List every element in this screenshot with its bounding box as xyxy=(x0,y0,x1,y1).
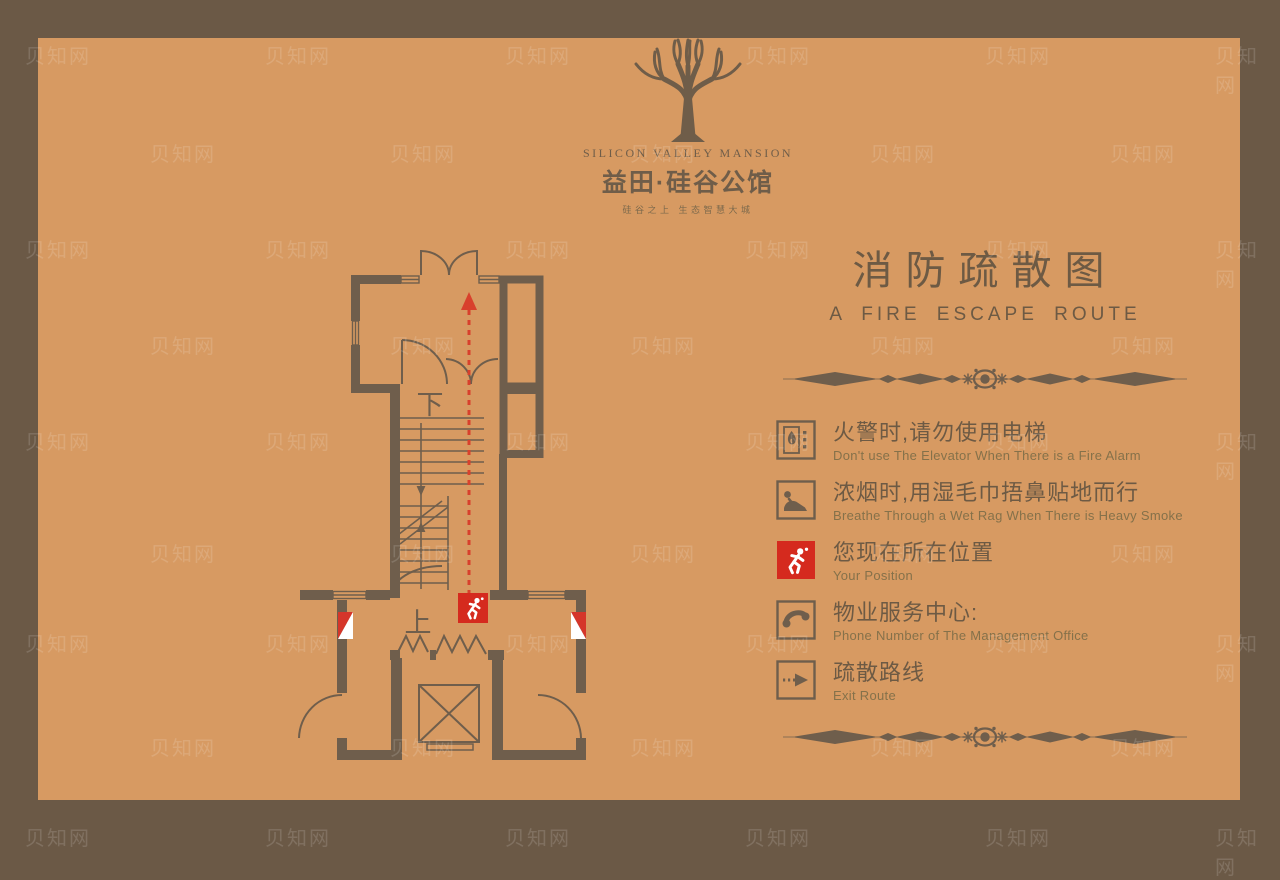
legend-row-crawl: 浓烟时,用湿毛巾捂鼻贴地而行 Breathe Through a Wet Rag… xyxy=(776,480,1194,526)
elevator xyxy=(398,636,486,750)
legend-text-en: Phone Number of The Management Office xyxy=(833,628,1194,643)
legend-text-cn: 火警时,请勿使用电梯 xyxy=(833,420,1194,446)
floor-plan: 下 上 xyxy=(283,236,603,781)
your-position-icon xyxy=(776,540,816,580)
legend-text-en: Your Position xyxy=(833,568,1194,583)
crawl-under-smoke-icon xyxy=(776,480,816,520)
legend-row-phone: 物业服务中心: Phone Number of The Management O… xyxy=(776,600,1194,646)
ornament-divider-bottom xyxy=(780,720,1190,754)
ornament-divider-top xyxy=(780,362,1190,396)
stair-up-label: 上 xyxy=(405,608,432,638)
windows xyxy=(333,276,565,599)
fire-escape-sign: { "brand": { "name_en": "SILICON VALLEY … xyxy=(0,0,1280,841)
stair-down-label: 下 xyxy=(417,390,444,420)
legend-text-en: Exit Route xyxy=(833,688,1194,703)
escape-route-arrow xyxy=(461,292,477,594)
legend: 火警时,请勿使用电梯 Don't use The Elevator When T… xyxy=(776,420,1194,706)
legend-text-cn: 您现在所在位置 xyxy=(833,540,1194,566)
tree-logo-icon xyxy=(621,38,755,142)
brand-name-cn: 益田·硅谷公馆 xyxy=(478,163,898,199)
legend-row-position: 您现在所在位置 Your Position xyxy=(776,540,1194,586)
legend-row-route: 疏散路线 Exit Route xyxy=(776,660,1194,706)
page-title: 消防疏散图 xyxy=(776,238,1194,296)
duct-shafts xyxy=(504,280,540,455)
floor-plan-drawing: 下 上 xyxy=(283,236,603,781)
legend-text-cn: 浓烟时,用湿毛巾捂鼻贴地而行 xyxy=(833,480,1194,506)
legend-text-en: Breathe Through a Wet Rag When There is … xyxy=(833,508,1194,523)
legend-text-en: Don't use The Elevator When There is a F… xyxy=(833,448,1194,463)
brand-tagline: 硅谷之上 生态智慧大城 xyxy=(478,203,898,216)
legend-row-no-elevator: 火警时,请勿使用电梯 Don't use The Elevator When T… xyxy=(776,420,1194,466)
position-marker xyxy=(458,593,488,623)
info-column: 消防疏散图 A FIRE ESCAPE ROUTE xyxy=(776,238,1194,754)
wall-marker-right xyxy=(571,612,586,639)
brand-name-en: SILICON VALLEY MANSION xyxy=(478,146,898,161)
legend-text-cn: 疏散路线 xyxy=(833,660,1194,686)
sign-panel: SILICON VALLEY MANSION 益田·硅谷公馆 硅谷之上 生态智慧… xyxy=(38,38,1240,800)
page-subtitle: A FIRE ESCAPE ROUTE xyxy=(776,304,1194,326)
exit-route-icon xyxy=(776,660,816,700)
legend-text-cn: 物业服务中心: xyxy=(833,600,1194,626)
wall-marker-left xyxy=(338,612,353,639)
phone-icon xyxy=(776,600,816,640)
brand-block: SILICON VALLEY MANSION 益田·硅谷公馆 硅谷之上 生态智慧… xyxy=(478,38,898,216)
no-elevator-on-fire-icon xyxy=(776,420,816,460)
